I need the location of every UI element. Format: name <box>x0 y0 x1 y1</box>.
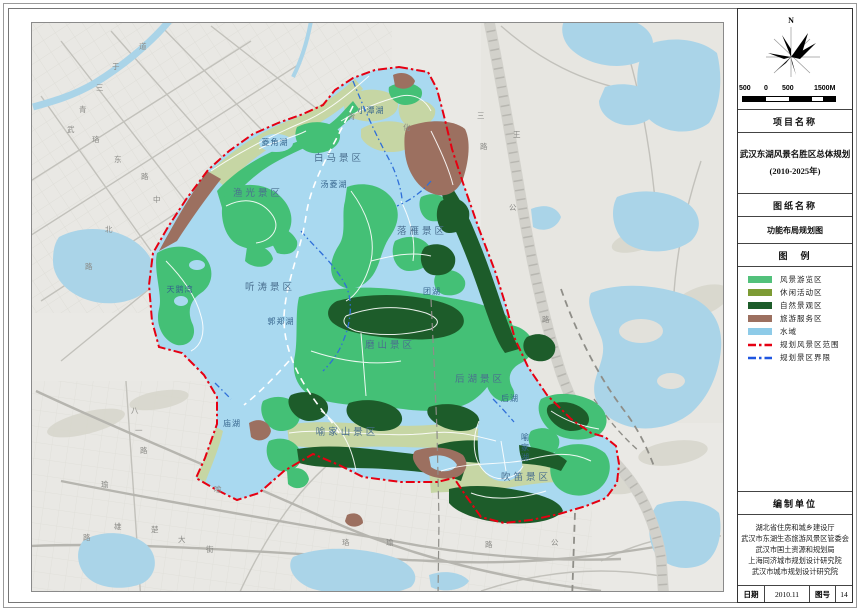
zone-label-baima: 白马景区 <box>314 152 364 164</box>
road-char: 北 <box>105 225 113 234</box>
project-title-line2: (2010-2025年) <box>770 166 821 177</box>
lake-label-yujiahu: 喻家湖 <box>521 432 530 463</box>
zone-label-houhu: 后湖景区 <box>455 374 505 385</box>
zone-label-yuguang: 渔光景区 <box>233 187 283 199</box>
road-char: 路 <box>83 532 91 542</box>
legend-row-service: 旅游服务区 <box>748 312 852 325</box>
legend-swatch-natural <box>748 302 772 309</box>
section-header-orgs: 编制单位 <box>738 491 852 515</box>
map-layers: 白马景区 渔光景区 听涛景区 落雁景区 磨山景区 后湖景区 喻家山景区 吹笛景区… <box>32 23 723 591</box>
legend-label: 风景游览区 <box>780 274 823 285</box>
road-char: 楚 <box>151 524 159 534</box>
section-header-legend: 图 例 <box>738 243 852 267</box>
road-char: 三 <box>477 111 485 120</box>
figure-number-value: 14 <box>835 586 852 602</box>
road-char: 雄 <box>114 521 122 531</box>
legend-row-scenic-tour: 风景游览区 <box>748 273 852 286</box>
road-char: 街 <box>206 544 214 554</box>
scale-label-1: 0 <box>764 85 768 92</box>
figure-number-label: 图号 <box>809 586 835 602</box>
lake-label-tuanhu: 团湖 <box>423 287 441 296</box>
road-char: 中 <box>153 194 161 204</box>
road-char: 路 <box>485 539 493 549</box>
legend-swatch-scenic-tour <box>748 276 772 283</box>
lake-label-tanglinghu: 汤菱湖 <box>321 179 348 189</box>
zone-label-chuidi: 吹笛景区 <box>501 471 551 483</box>
map-canvas[interactable]: 白马景区 渔光景区 听涛景区 落雁景区 磨山景区 后湖景区 喻家山景区 吹笛景区… <box>31 22 724 592</box>
compass-rose-icon: N <box>738 9 852 85</box>
panel-spacer <box>738 367 852 491</box>
organizations-block: 湖北省住房和城乡建设厅 武汉市东湖生态旅游风景区管委会 武汉市国土资源和规划局 … <box>738 515 852 585</box>
scale-label-3: 1500M <box>814 85 835 92</box>
road-char: 武 <box>67 124 75 134</box>
north-label: N <box>788 16 794 25</box>
zone-label-moshan: 磨山景区 <box>365 340 415 351</box>
road-char: 路 <box>85 261 93 271</box>
legend-label: 休闲活动区 <box>780 287 823 298</box>
project-title-block: 武汉东湖风景名胜区总体规划 (2010-2025年) <box>738 133 852 193</box>
road-char: 东 <box>114 154 122 164</box>
planning-map-svg: 白马景区 渔光景区 听涛景区 落雁景区 磨山景区 后湖景区 喻家山景区 吹笛景区… <box>32 23 723 591</box>
organization-line: 湖北省住房和城乡建设厅 <box>755 523 834 533</box>
project-title-line1: 武汉东湖风景名胜区总体规划 <box>740 149 851 160</box>
lake-label-miaohu: 庙湖 <box>223 418 241 428</box>
road-char: 珞 <box>342 537 350 547</box>
road-char: 八 <box>131 406 139 415</box>
lake-label-xiaotanhu: 小潭湖 <box>358 106 385 115</box>
legend-row-natural: 自然景观区 <box>748 299 852 312</box>
road-char: 大 <box>178 534 186 544</box>
road-char: 一 <box>135 426 143 435</box>
legend-row-water: 水域 <box>748 325 852 338</box>
legend-row-leisure: 休闲活动区 <box>748 286 852 299</box>
bay-label-tianewan: 天鹅湾 <box>167 284 194 294</box>
legend-swatch-service <box>748 315 772 322</box>
date-label: 日期 <box>738 586 764 602</box>
section-header-sheet: 图纸名称 <box>738 193 852 217</box>
legend-label: 自然景观区 <box>780 300 823 311</box>
title-block-panel: N 500 0 500 1500M 项目名称 武汉东湖风景名胜区总体规划 (20… <box>737 8 853 603</box>
road-char: 瑜 <box>101 479 109 489</box>
legend-label: 规划风景区范围 <box>780 339 840 350</box>
legend-block: 风景游览区 休闲活动区 自然景观区 旅游服务区 水域 <box>738 267 852 367</box>
road-char: 青 <box>348 111 356 121</box>
legend-row-boundary: 规划风景区范围 <box>748 338 852 351</box>
zone-label-tingtao: 听涛景区 <box>245 281 295 293</box>
road-char: 道 <box>139 41 147 51</box>
road-char: 喻 <box>214 484 222 494</box>
organization-line: 武汉市城市规划设计研究院 <box>752 567 838 577</box>
road-char: 于 <box>112 62 120 71</box>
road-char: 瑜 <box>386 537 394 547</box>
legend-swatch-leisure <box>748 289 772 296</box>
road-char: 公 <box>551 538 559 547</box>
lake-label-houhu: 后湖 <box>501 393 519 403</box>
legend-label: 规划景区界限 <box>780 352 831 363</box>
zone-label-luoyan: 落雁景区 <box>397 225 447 237</box>
section-header-project: 项目名称 <box>738 109 852 133</box>
zone-label-yujiashan: 喻家山景区 <box>316 426 379 438</box>
organization-line: 武汉市国土资源和规划局 <box>755 545 834 555</box>
organization-line: 武汉市东湖生态旅游风景区管委会 <box>741 534 849 544</box>
sheet-title: 功能布局规划图 <box>738 217 852 243</box>
road-char: 路 <box>141 171 149 181</box>
road-char: 化 <box>403 122 411 132</box>
road-char: 珞 <box>92 134 100 144</box>
road-char: 路 <box>140 445 148 455</box>
scale-label-0: 500 <box>739 85 751 92</box>
date-value: 2010.11 <box>764 586 809 602</box>
organization-line: 上海同济城市规划设计研究院 <box>748 556 841 566</box>
road-char: 路 <box>480 141 488 151</box>
legend-swatch-zone-line <box>748 353 772 362</box>
footer-row: 日期 2010.11 图号 14 <box>738 585 852 602</box>
scale-bar: 500 0 500 1500M <box>738 85 852 109</box>
road-char: 路 <box>542 314 550 324</box>
road-char: 王 <box>513 130 521 139</box>
plan-sheet: 白马景区 渔光景区 听涛景区 落雁景区 磨山景区 后湖景区 喻家山景区 吹笛景区… <box>0 0 860 611</box>
legend-swatch-boundary-line <box>748 340 772 349</box>
lake-label-guozhenghu: 郭郑湖 <box>268 316 295 326</box>
road-char: 三 <box>96 83 104 92</box>
scale-label-2: 500 <box>782 85 794 92</box>
legend-label: 水域 <box>780 326 797 337</box>
road-char: 公 <box>509 203 517 212</box>
legend-label: 旅游服务区 <box>780 313 823 324</box>
road-char: 青 <box>79 104 87 114</box>
compass-block: N <box>738 9 852 85</box>
scale-bar-segments <box>742 96 836 102</box>
legend-swatch-water <box>748 328 772 335</box>
lake-label-lingjiaohu: 菱角湖 <box>262 137 289 147</box>
legend-row-zone-limit: 规划景区界限 <box>748 351 852 364</box>
